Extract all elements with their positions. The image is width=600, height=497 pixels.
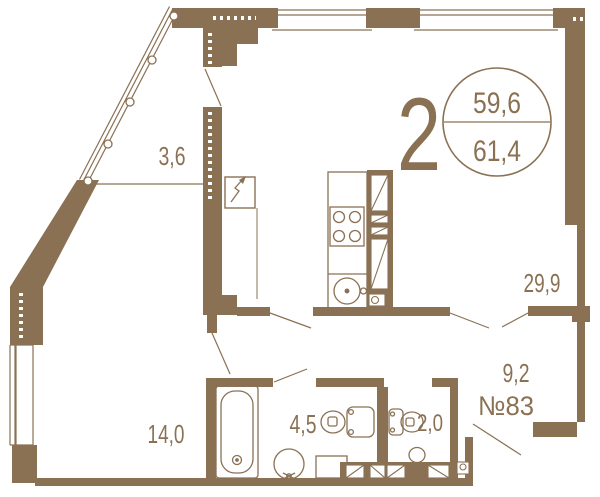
hall-opening-mark-right <box>502 313 528 327</box>
bathtub-icon <box>216 386 258 478</box>
wall-corner-entry <box>533 422 577 437</box>
floor-plan: 2 59,6 61,4 3,6 29,9 14,0 4,5 2,0 9,2 №8… <box>0 0 600 497</box>
wall-a-step1 <box>222 28 237 66</box>
shaft-column-insets <box>369 175 388 306</box>
area-living-label: 59,6 <box>473 87 521 120</box>
hall-opening-mark-left <box>450 313 489 328</box>
insulation-dots <box>21 18 584 340</box>
wall-corner-bl <box>12 445 37 483</box>
wall-right-lower <box>577 322 585 422</box>
room-label-hallway: 9,2 <box>503 358 530 388</box>
lines-layer <box>10 7 558 456</box>
wall-diagonal-left <box>10 180 99 345</box>
wall-top-left <box>172 8 278 28</box>
room-label-loggia: 3,6 <box>159 141 186 171</box>
toilet-icon-left <box>321 407 374 437</box>
entry-door-swing <box>473 424 521 455</box>
room-label-living-kitchen: 29,9 <box>524 268 561 298</box>
wall-top-mid <box>366 8 420 28</box>
washbasin-icon <box>274 449 304 479</box>
room-label-wc: 2,0 <box>417 410 443 437</box>
wall-right-upper <box>565 8 585 225</box>
area-total-label: 61,4 <box>473 135 521 168</box>
floor-plan-page: 2 59,6 61,4 3,6 29,9 14,0 4,5 2,0 9,2 №8… <box>0 0 600 497</box>
kitchen-opening-mark <box>270 313 311 328</box>
stove-icon <box>330 207 364 246</box>
wall-a-lower <box>203 107 222 297</box>
wall-bath-top2 <box>316 378 384 387</box>
apartment-number-label: №83 <box>478 391 534 421</box>
window-top-left-icon <box>272 10 372 30</box>
wall-a-step2 <box>237 28 258 44</box>
bathroom-door-swing <box>274 369 307 382</box>
kitchen-sink-icon <box>334 278 367 304</box>
wall-hallway-top <box>528 306 577 316</box>
room-count-label: 2 <box>397 77 441 193</box>
window-bedroom-icon <box>10 345 33 445</box>
bedroom-door-swing <box>212 333 230 374</box>
electric-panel-icon <box>225 176 255 208</box>
wall-right-mid <box>577 225 585 306</box>
wall-a-upper <box>203 28 222 67</box>
wall-a-block <box>203 295 237 315</box>
loggia-door-swing <box>205 69 221 106</box>
wall-b-stub <box>207 315 217 333</box>
wall-mid-seg1 <box>237 307 270 316</box>
wall-b-lower <box>206 378 216 478</box>
room-label-bathroom: 4,5 <box>290 409 317 439</box>
window-top-right-icon <box>414 10 558 30</box>
room-label-bedroom: 14,0 <box>148 419 185 449</box>
